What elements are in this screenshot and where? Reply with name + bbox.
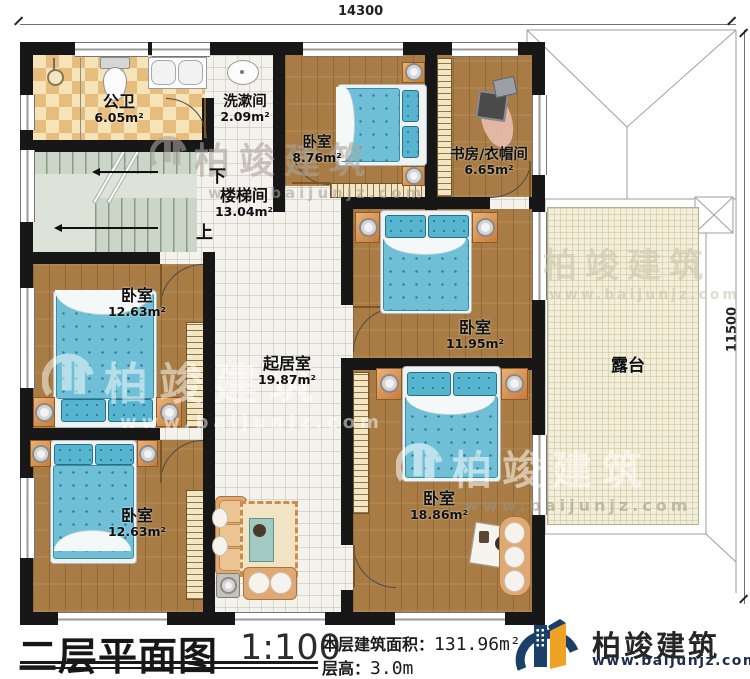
floor-plan-page: 14300 11500: [0, 0, 750, 679]
bed-pillow: [402, 126, 419, 158]
lamp-icon: [32, 445, 50, 463]
wardrobe-bedroom-bottom: [353, 372, 369, 514]
lamp-icon: [35, 403, 54, 422]
stair-arrow-down: [100, 171, 158, 173]
title-bar: 二层平面图 1:100 本层建筑面积：131.96m² 层高：3.0m 柏竣建筑…: [0, 625, 750, 679]
ottoman-pillow: [270, 572, 292, 594]
floor-height-row: 层高：3.0m: [322, 655, 413, 679]
bed-pillow: [385, 215, 426, 238]
stair-arrow-down-head: [92, 168, 100, 176]
lamp-icon: [380, 374, 399, 393]
window: [532, 435, 547, 515]
wardrobe-bedroom-bottomleft: [186, 490, 204, 600]
bed-pillow: [428, 215, 469, 238]
window: [20, 478, 35, 558]
bed-pillow: [453, 372, 497, 396]
wardrobe-bedroom-midleft: [186, 322, 204, 428]
brand-logo-icon: [508, 617, 588, 679]
door-leaf: [160, 440, 162, 482]
room-label-bedroom-bottom: 卧室18.86m²: [410, 491, 468, 521]
bed-pillow: [402, 90, 419, 122]
door-leaf: [204, 98, 206, 138]
stair-down-label: 下: [209, 162, 226, 187]
wall: [341, 197, 490, 209]
window: [20, 150, 35, 222]
desk-items-icon: [479, 531, 489, 543]
door-leaf: [353, 545, 355, 587]
brand-url: www.baijunjz.com: [592, 653, 750, 669]
sofa-armrest: [212, 508, 228, 528]
table-plant-icon: [253, 524, 266, 537]
floor-area-label: 本层建筑面积：: [322, 635, 434, 654]
wall: [341, 209, 353, 305]
sofa-armrest: [212, 536, 228, 556]
lamp-icon: [359, 218, 378, 237]
window: [452, 42, 518, 57]
window: [20, 288, 35, 388]
floor-height-label: 层高：: [322, 659, 370, 678]
sink-icon: [151, 60, 176, 85]
shower-hose-icon: [53, 58, 55, 70]
chaise-cushion: [504, 522, 525, 544]
stair-up-label: 上: [196, 218, 213, 243]
floor-area-row: 本层建筑面积：131.96m²: [322, 631, 521, 655]
wall: [203, 252, 215, 612]
chaise-cushion: [504, 570, 525, 592]
stair-arrow-up-head: [54, 224, 62, 232]
room-label-staircase: 楼梯间13.04m²: [215, 188, 273, 218]
room-label-study: 书房/衣帽间6.65m²: [450, 148, 528, 176]
bed-pillow: [407, 372, 451, 396]
bed-pillow: [108, 399, 153, 422]
room-label-bedroom-bottomleft: 卧室12.63m²: [108, 508, 166, 538]
room-label-living: 起居室19.87m²: [258, 356, 316, 386]
room-label-terrace: 露台: [611, 358, 645, 376]
ottoman-pillow: [248, 572, 270, 594]
wall: [273, 42, 285, 212]
shower-head-icon: [47, 69, 64, 86]
lamp-icon: [405, 63, 423, 81]
window: [20, 95, 35, 130]
wall: [20, 140, 214, 152]
lamp-icon: [505, 374, 524, 393]
stair-flight-lower: [95, 198, 197, 252]
bed-pillow: [95, 444, 134, 465]
window: [532, 95, 547, 175]
wall: [341, 590, 353, 612]
bed-pillow: [61, 399, 106, 422]
page-title: 二层平面图: [18, 626, 218, 679]
wall: [20, 252, 160, 264]
wall: [529, 197, 545, 209]
lamp-icon: [220, 577, 237, 594]
lamp-icon: [476, 218, 495, 237]
room-label-bedroom-top: 卧室8.76m²: [292, 136, 341, 164]
floor-height-value: 3.0m: [370, 658, 413, 679]
lamp-icon: [139, 445, 157, 463]
bed-pillow: [54, 444, 93, 465]
window: [152, 42, 210, 57]
door-leaf: [292, 182, 330, 184]
lamp-icon: [160, 403, 179, 422]
door-leaf: [529, 161, 531, 197]
window: [303, 42, 403, 57]
room-label-bedroom-midleft: 卧室12.63m²: [108, 288, 166, 318]
wall: [20, 428, 160, 440]
lamp-icon: [405, 167, 423, 185]
room-label-washroom: 洗漱间2.09m²: [220, 95, 269, 123]
wall: [341, 358, 353, 545]
shower-divider: [80, 58, 81, 140]
stair-arrow-up: [62, 227, 158, 229]
chaise-cushion: [504, 546, 525, 568]
terrace-sliding-door: [532, 212, 547, 300]
sink-icon: [178, 60, 203, 85]
washroom-sink-drain: [240, 70, 244, 74]
room-label-bathroom: 公卫6.05m²: [94, 94, 143, 124]
window: [75, 42, 148, 57]
room-label-bedroom-center: 卧室11.95m²: [446, 320, 504, 350]
